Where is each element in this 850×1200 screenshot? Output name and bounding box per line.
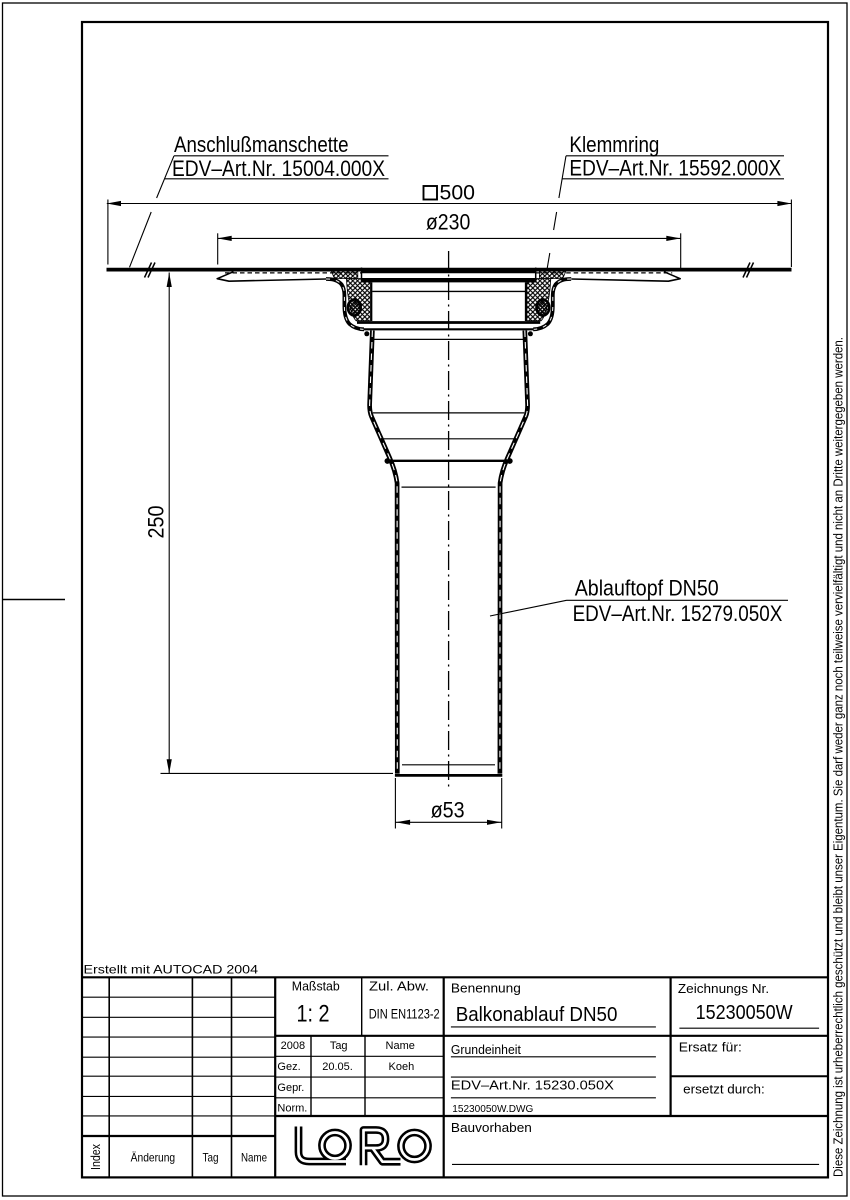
svg-text:Ablauftopf DN50: Ablauftopf DN50 xyxy=(575,576,719,601)
svg-text:Erstellt mit AUTOCAD 2004: Erstellt mit AUTOCAD 2004 xyxy=(84,963,259,977)
svg-text:Zul. Abw.: Zul. Abw. xyxy=(369,980,429,994)
svg-text:EDV–Art.Nr. 15004.000X: EDV–Art.Nr. 15004.000X xyxy=(172,156,385,181)
svg-text:Tag: Tag xyxy=(203,1151,219,1165)
svg-text:15230050W.DWG: 15230050W.DWG xyxy=(452,1103,533,1115)
svg-text:Ersatz für:: Ersatz für: xyxy=(679,1041,742,1055)
svg-text:15230050W: 15230050W xyxy=(696,1002,793,1024)
svg-text:Gez.: Gez. xyxy=(277,1061,300,1073)
svg-text:Gepr.: Gepr. xyxy=(277,1082,304,1094)
svg-text:ø230: ø230 xyxy=(426,210,470,235)
svg-text:250: 250 xyxy=(144,506,169,539)
svg-text:Anschlußmanschette: Anschlußmanschette xyxy=(174,132,349,157)
svg-text:Grundeinheit: Grundeinheit xyxy=(451,1043,522,1057)
svg-text:Tag: Tag xyxy=(330,1040,348,1052)
svg-text:Änderung: Änderung xyxy=(131,1151,176,1165)
svg-text:Diese Zeichnung ist urheberrec: Diese Zeichnung ist urheberrechtlich ges… xyxy=(831,337,846,1177)
svg-text:Name: Name xyxy=(241,1151,267,1165)
svg-text:DIN EN1123-2: DIN EN1123-2 xyxy=(369,1006,440,1022)
svg-text:ø53: ø53 xyxy=(431,798,465,823)
svg-text:Zeichnungs Nr.: Zeichnungs Nr. xyxy=(678,982,769,996)
svg-text:1: 2: 1: 2 xyxy=(297,1001,330,1028)
svg-text:20.05.: 20.05. xyxy=(322,1061,353,1073)
svg-text:EDV–Art.Nr. 15230.050X: EDV–Art.Nr. 15230.050X xyxy=(451,1079,615,1093)
svg-text:Bauvorhaben: Bauvorhaben xyxy=(451,1121,532,1135)
svg-text:2008: 2008 xyxy=(281,1040,305,1052)
svg-text:Norm.: Norm. xyxy=(277,1103,307,1115)
svg-text:Index: Index xyxy=(89,1143,103,1170)
svg-text:Maßstab: Maßstab xyxy=(292,980,340,994)
svg-text:EDV–Art.Nr. 15592.000X: EDV–Art.Nr. 15592.000X xyxy=(569,156,781,181)
svg-text:ersetzt durch:: ersetzt durch: xyxy=(683,1083,765,1097)
svg-text:Benennung: Benennung xyxy=(451,982,521,996)
svg-text:EDV–Art.Nr. 15279.050X: EDV–Art.Nr. 15279.050X xyxy=(573,601,783,626)
svg-text:Balkonablauf DN50: Balkonablauf DN50 xyxy=(456,1004,618,1026)
svg-text:Name: Name xyxy=(386,1040,415,1052)
svg-text:Klemmring: Klemmring xyxy=(569,132,659,157)
svg-text:Koeh: Koeh xyxy=(389,1061,415,1073)
svg-text:500: 500 xyxy=(440,181,476,205)
